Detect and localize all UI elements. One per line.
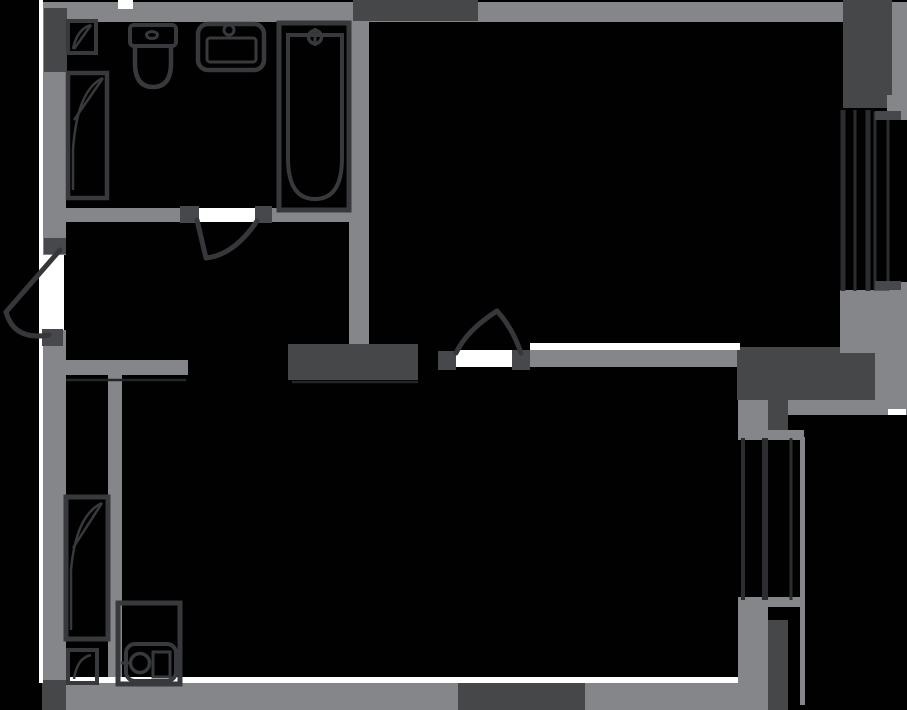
toilet-tank bbox=[130, 25, 176, 46]
wall-bottom-dark-segment bbox=[458, 683, 585, 710]
bathroom-door-panel bbox=[197, 220, 206, 258]
bedroom-door-swing-arc bbox=[456, 311, 497, 353]
wall-right-jog bbox=[875, 282, 907, 413]
wall-top-dark-segment bbox=[353, 0, 478, 21]
balcony-railing bbox=[875, 113, 888, 289]
wall-hallway-south bbox=[42, 360, 188, 375]
floor-plan-drawing bbox=[0, 0, 907, 710]
bathtub-inner bbox=[288, 35, 342, 199]
balcony-railing-cap-top bbox=[875, 111, 901, 120]
wall-right-dark-bottom bbox=[768, 620, 788, 710]
wall-lowright-dark-band bbox=[737, 347, 877, 400]
balcony-railing-cap-bottom bbox=[875, 281, 901, 290]
toilet-flush-button bbox=[147, 32, 158, 39]
wardrobe bbox=[66, 497, 108, 639]
wall-right-lower-b bbox=[738, 603, 768, 683]
washer-drain-board bbox=[153, 652, 170, 677]
sink bbox=[198, 24, 264, 70]
wall-bedroom-south bbox=[530, 350, 738, 367]
bedroom-wall-inner-edge bbox=[530, 343, 740, 350]
sink-faucet bbox=[224, 25, 234, 35]
window-pier bbox=[840, 290, 876, 353]
wall-left-lower bbox=[42, 330, 66, 710]
bathtub bbox=[279, 23, 349, 210]
living-window bbox=[743, 438, 791, 600]
bedroom-door-threshold bbox=[455, 350, 513, 367]
toilet-bowl bbox=[135, 46, 171, 87]
wall-right-lower-a bbox=[738, 400, 768, 433]
small-cabinet-arc bbox=[74, 655, 91, 679]
doors bbox=[6, 206, 530, 370]
wall-mid-dark-block bbox=[288, 344, 418, 380]
entrance-jamb-top bbox=[44, 238, 66, 254]
toilet bbox=[130, 25, 176, 87]
floor-plan-canvas bbox=[0, 0, 907, 710]
living-window-sill-top bbox=[738, 430, 804, 440]
tall-cabinet bbox=[68, 73, 107, 198]
wall-bottom bbox=[42, 683, 768, 710]
bathroom-door-threshold bbox=[190, 208, 256, 222]
pillar-bottom-left bbox=[42, 680, 66, 710]
pillar-top-left bbox=[44, 8, 67, 72]
bathroom-door-swing-arc bbox=[206, 221, 257, 258]
bedroom-jamb-left bbox=[438, 351, 456, 370]
openings bbox=[39, 0, 906, 683]
bathroom-fixtures bbox=[68, 21, 349, 210]
pillar-top-right bbox=[843, 0, 892, 108]
washer-faucet bbox=[131, 654, 150, 673]
furniture bbox=[66, 497, 180, 684]
wall-bathroom-south-left bbox=[66, 208, 190, 222]
right-band-notch bbox=[888, 409, 906, 415]
balcony-edge-line bbox=[800, 437, 805, 705]
top-wall-notch bbox=[118, 0, 133, 9]
corner-cabinet bbox=[68, 21, 96, 53]
wardrobe-arc bbox=[71, 503, 102, 630]
sink-basin bbox=[207, 38, 256, 62]
bedroom-door-panel bbox=[497, 311, 521, 353]
living-window-sill-bottom bbox=[738, 597, 804, 607]
wall-mid-vertical bbox=[349, 2, 369, 348]
wardrobe-door bbox=[73, 503, 102, 548]
washer-sink-unit bbox=[118, 603, 180, 684]
tall-cabinet-arc bbox=[73, 78, 103, 190]
bedroom-window bbox=[843, 110, 901, 291]
